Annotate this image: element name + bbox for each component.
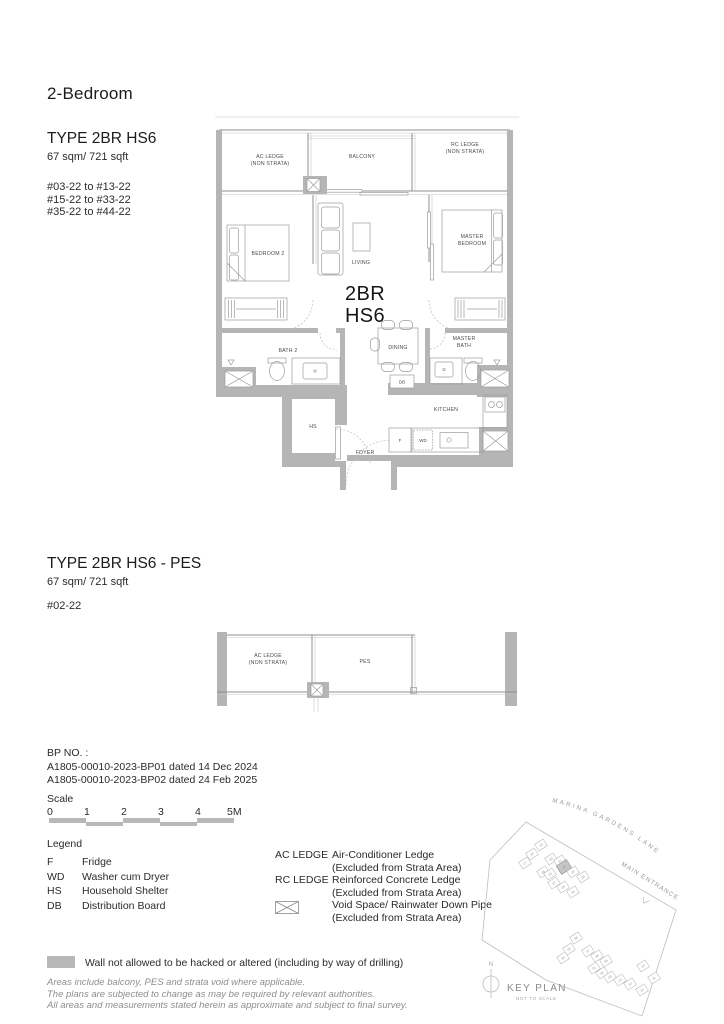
void-boxes bbox=[225, 370, 509, 451]
legend-key: WD bbox=[47, 871, 65, 883]
label-db: DB bbox=[399, 380, 405, 385]
keyplan-unit: 06 bbox=[570, 932, 583, 944]
legend-desc: (Excluded from Strata Area) bbox=[332, 862, 462, 874]
legend-desc: Fridge bbox=[82, 856, 112, 868]
legend-desc: Air-Conditioner Ledge bbox=[332, 849, 434, 861]
void-space-icon bbox=[311, 684, 323, 696]
plan-code-line2: HS6 bbox=[345, 305, 385, 327]
label-master-bath: MASTER bbox=[453, 336, 476, 342]
disclaimer-line: All areas and measurements stated herein… bbox=[47, 1000, 408, 1012]
label-fridge: F bbox=[399, 438, 402, 443]
unit1-stack-range: #15-22 to #33-22 bbox=[47, 194, 131, 207]
keyplan-unit: 12 bbox=[636, 984, 649, 996]
void-space-icon bbox=[275, 901, 299, 914]
page-title: 2-Bedroom bbox=[47, 84, 133, 104]
unit2-stack-range: #02-22 bbox=[47, 600, 81, 613]
keyplan-cluster-2: 06 05 04 07 08 09 01 02 03 10 11 14 13 1… bbox=[557, 932, 661, 996]
label-ac-ledge-2: (NON STRATA) bbox=[251, 161, 290, 167]
bp-line: A1805-00010-2023-BP01 dated 14 Dec 2024 bbox=[47, 761, 258, 774]
scale-tick: 2 bbox=[121, 806, 127, 818]
street-name: MARINA GARDENS LANE bbox=[552, 797, 662, 856]
unit2-type-title: TYPE 2BR HS6 - PES bbox=[47, 555, 201, 573]
legend-key: F bbox=[47, 856, 53, 868]
scale-segment bbox=[86, 822, 123, 827]
legend-desc: Washer cum Dryer bbox=[82, 871, 169, 883]
void-space-icon bbox=[225, 371, 253, 387]
legend-title: Legend bbox=[47, 838, 82, 850]
label-balcony: BALCONY bbox=[349, 154, 376, 160]
legend-key: AC LEDGE bbox=[275, 849, 328, 861]
wall-swatch bbox=[47, 956, 75, 968]
label-master-bedroom: MASTER bbox=[461, 234, 484, 240]
scale-tick: 4 bbox=[195, 806, 201, 818]
label-bedroom2: BEDROOM 2 bbox=[252, 251, 285, 257]
main-entrance-label: MAIN ENTRANCE bbox=[620, 861, 680, 902]
label-wd: WD bbox=[419, 438, 427, 443]
bp-line: A1805-00010-2023-BP02 dated 24 Feb 2025 bbox=[47, 774, 258, 787]
keyplan-subtitle: NOT TO SCALE bbox=[516, 996, 557, 1001]
room-labels: AC LEDGE (NON STRATA) PES bbox=[249, 653, 371, 666]
unit2-area: 67 sqm/ 721 sqft bbox=[47, 576, 128, 588]
legend-key: RC LEDGE bbox=[275, 874, 329, 886]
svg-text:N: N bbox=[489, 962, 493, 968]
floorplan-page: 2-Bedroom TYPE 2BR HS6 67 sqm/ 721 sqft … bbox=[0, 0, 724, 1024]
unit1-stacks: #03-22 to #13-22 #15-22 to #33-22 #35-22… bbox=[47, 181, 131, 219]
unit2-stacks: #02-22 bbox=[47, 600, 81, 613]
label-ac-ledge: AC LEDGE bbox=[254, 653, 282, 659]
legend-desc: Reinforced Concrete Ledge bbox=[332, 874, 460, 886]
unit1-type-title: TYPE 2BR HS6 bbox=[47, 130, 156, 148]
floorplan-2br-hs6: AC LEDGE (NON STRATA) BALCONY RC LEDGE (… bbox=[208, 112, 520, 494]
unit1-area: 67 sqm/ 721 sqft bbox=[47, 151, 128, 163]
label-kitchen: KITCHEN bbox=[434, 407, 458, 413]
scale-tick: 5M bbox=[227, 806, 242, 818]
bp-lines: A1805-00010-2023-BP01 dated 14 Dec 2024 … bbox=[47, 761, 258, 787]
legend-key: DB bbox=[47, 900, 62, 912]
scale-segment bbox=[160, 822, 197, 827]
legend-desc: Household Shelter bbox=[82, 885, 168, 897]
void-space-icon bbox=[307, 179, 320, 192]
plan-code-line1: 2BR bbox=[345, 283, 385, 305]
keyplan-unit: 11 bbox=[648, 972, 661, 984]
legend-key: HS bbox=[47, 885, 62, 897]
label-master-bath-2: BATH bbox=[457, 343, 471, 349]
scale-label: Scale bbox=[47, 793, 73, 805]
disclaimer: Areas include balcony, PES and strata vo… bbox=[47, 977, 408, 1012]
scale-tick: 3 bbox=[158, 806, 164, 818]
north-compass-icon: N bbox=[483, 962, 499, 998]
keyplan-unit: 10 bbox=[637, 960, 650, 972]
legend-desc: Void Space/ Rainwater Down Pipe bbox=[332, 899, 492, 911]
floorplan-2br-hs6-pes: AC LEDGE (NON STRATA) PES bbox=[208, 616, 520, 736]
void-space-icon bbox=[483, 431, 508, 451]
scale-tick: 1 bbox=[84, 806, 90, 818]
key-plan: MARINA GARDENS LANE MAIN ENTRANCE 19 18 … bbox=[480, 788, 724, 1024]
unit1-stack-range: #03-22 to #13-22 bbox=[47, 181, 131, 194]
entrance-arrow-icon bbox=[641, 897, 650, 905]
disclaimer-line: The plans are subjected to change as may… bbox=[47, 989, 408, 1001]
bp-label: BP NO. : bbox=[47, 747, 88, 759]
legend-desc: (Excluded from Strata Area) bbox=[332, 912, 462, 924]
label-hs: HS bbox=[309, 424, 317, 430]
label-ac-ledge: AC LEDGE bbox=[256, 154, 284, 160]
label-bath2: BATH 2 bbox=[279, 348, 298, 354]
void-space-icon bbox=[481, 370, 509, 387]
label-rc-ledge: RC LEDGE bbox=[451, 142, 479, 148]
scale-segment bbox=[197, 818, 234, 823]
scale-segment bbox=[123, 818, 160, 823]
label-master-bedroom-2: BEDROOM bbox=[458, 241, 486, 247]
label-foyer: FOYER bbox=[356, 450, 375, 456]
label-living: LIVING bbox=[352, 260, 370, 266]
label-rc-ledge-2: (NON STRATA) bbox=[446, 149, 485, 155]
legend-desc: Distribution Board bbox=[82, 900, 165, 912]
keyplan-cluster-1: 19 18 17 20 21 16 15 22 23 24 27 26 25 bbox=[519, 839, 590, 898]
label-ac-ledge-2: (NON STRATA) bbox=[249, 660, 288, 666]
scale-segment bbox=[49, 818, 86, 823]
walls-layer bbox=[217, 632, 517, 712]
keyplan-title: KEY PLAN bbox=[507, 983, 567, 994]
hack-note: Wall not allowed to be hacked or altered… bbox=[85, 957, 403, 969]
legend-desc: (Excluded from Strata Area) bbox=[332, 887, 462, 899]
label-pes: PES bbox=[360, 659, 371, 665]
unit1-stack-range: #35-22 to #44-22 bbox=[47, 206, 131, 219]
scale-tick: 0 bbox=[47, 806, 53, 818]
disclaimer-line: Areas include balcony, PES and strata vo… bbox=[47, 977, 408, 989]
keyplan-unit: 19 bbox=[535, 839, 548, 851]
label-dining: DINING bbox=[388, 345, 407, 351]
